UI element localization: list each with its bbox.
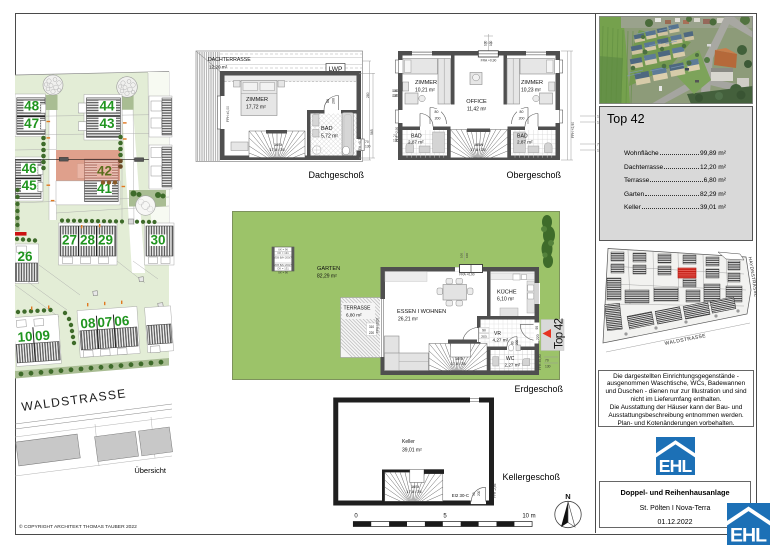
svg-text:100: 100 (460, 253, 464, 258)
svg-text:29: 29 (98, 233, 113, 248)
svg-text:10: 10 (17, 329, 33, 345)
svg-text:2,27 m²: 2,27 m² (505, 363, 521, 368)
svg-text:6,80 m²: 6,80 m² (346, 313, 362, 318)
svg-text:5: 5 (443, 514, 447, 520)
svg-text:565: 565 (370, 129, 374, 135)
svg-text:10,23 m²: 10,23 m² (521, 88, 541, 94)
svg-text:82,29 m²: 82,29 m² (317, 274, 337, 280)
svg-text:27: 27 (62, 233, 77, 248)
svg-text:280: 280 (366, 92, 370, 98)
svg-text:WC: WC (506, 356, 515, 362)
svg-text:FFH +2,90: FFH +2,90 (395, 127, 399, 142)
svg-text:FFH +2,90: FFH +2,90 (571, 122, 575, 138)
svg-text:45: 45 (22, 178, 38, 193)
svg-text:26,21 m²: 26,21 m² (398, 317, 418, 323)
svg-text:200: 200 (519, 117, 525, 121)
svg-text:11,42 m²: 11,42 m² (467, 107, 487, 113)
svg-text:10,21 m²: 10,21 m² (415, 88, 435, 94)
svg-text:80: 80 (326, 99, 330, 103)
svg-text:17,8 / 25: 17,8 / 25 (450, 361, 465, 366)
svg-text:80: 80 (520, 110, 524, 114)
svg-text:200: 200 (435, 117, 441, 121)
svg-text:4,27 m²: 4,27 m² (493, 338, 509, 343)
svg-text:100: 100 (484, 40, 488, 46)
svg-text:17,8 / 25: 17,8 / 25 (406, 489, 421, 494)
svg-text:Top 42: Top 42 (554, 318, 566, 349)
svg-text:UK = 96: UK = 96 (278, 271, 288, 275)
svg-text:Keller: Keller (402, 439, 415, 445)
svg-text:ESSEN I WOHNEN: ESSEN I WOHNEN (397, 309, 446, 315)
svg-text:OFFICE: OFFICE (466, 99, 487, 105)
svg-text:130: 130 (365, 145, 371, 149)
svg-text:FRA +0,90: FRA +0,90 (481, 59, 497, 63)
svg-text:WALDSTRASSE: WALDSTRASSE (21, 386, 128, 414)
svg-text:VR: VR (494, 331, 501, 337)
svg-text:220: 220 (369, 331, 375, 335)
svg-text:FFH -2,86: FFH -2,86 (493, 483, 497, 498)
svg-text:100: 100 (392, 89, 398, 93)
svg-text:310: 310 (369, 325, 375, 329)
svg-text:2,87 m²: 2,87 m² (408, 140, 424, 145)
svg-text:26: 26 (17, 249, 33, 264)
svg-text:GARTEN: GARTEN (317, 266, 340, 272)
svg-text:43: 43 (99, 116, 115, 131)
svg-text:2,87 m²: 2,87 m² (517, 140, 533, 145)
svg-text:10 m: 10 m (522, 514, 535, 520)
svg-text:FFH ±0,00: FFH ±0,00 (376, 318, 380, 333)
svg-text:28: 28 (80, 233, 96, 248)
svg-text:OK = 131: OK = 131 (277, 251, 289, 255)
svg-text:EHL: EHL (659, 456, 693, 475)
svg-text:90: 90 (472, 492, 476, 496)
svg-text:47: 47 (24, 116, 39, 131)
svg-text:06: 06 (114, 313, 131, 329)
svg-text:42: 42 (97, 163, 112, 178)
svg-text:09: 09 (34, 328, 50, 344)
svg-text:220: 220 (536, 334, 540, 340)
svg-text:FRA +0,90: FRA +0,90 (459, 273, 474, 277)
svg-text:TERRASSE: TERRASSE (344, 306, 372, 312)
svg-text:90: 90 (482, 329, 486, 333)
svg-text:200: 200 (481, 335, 487, 339)
svg-text:6,10 m²: 6,10 m² (497, 297, 514, 303)
svg-text:80: 80 (435, 110, 439, 114)
svg-text:70: 70 (365, 140, 369, 144)
svg-text:07: 07 (97, 314, 113, 330)
svg-text:130: 130 (392, 94, 398, 98)
svg-text:100: 100 (489, 40, 493, 46)
svg-text:200: 200 (515, 339, 519, 345)
svg-text:N: N (565, 492, 570, 501)
svg-text:17,8 / 25: 17,8 / 25 (269, 147, 284, 152)
svg-text:DACHTERRASSE: DACHTERRASSE (208, 57, 251, 63)
svg-text:130: 130 (545, 365, 551, 369)
svg-text:5,72 m²: 5,72 m² (321, 134, 338, 140)
svg-text:EHL: EHL (730, 525, 767, 545)
svg-text:WDB B/H 200/70: WDB B/H 200/70 (273, 263, 294, 267)
svg-text:30: 30 (150, 233, 165, 248)
svg-text:ZIMMER: ZIMMER (246, 97, 268, 103)
svg-text:WALDSTRASSE: WALDSTRASSE (664, 333, 707, 347)
svg-text:12,20 m²: 12,20 m² (209, 65, 228, 70)
svg-text:KÜCHE: KÜCHE (497, 289, 517, 296)
svg-text:0: 0 (354, 514, 358, 520)
svg-text:100: 100 (465, 253, 469, 258)
svg-text:48: 48 (24, 99, 40, 114)
svg-text:WDB B/H 200/70: WDB B/H 200/70 (273, 255, 294, 259)
svg-text:FFH ±0,00: FFH ±0,00 (226, 106, 230, 122)
svg-text:FFH +5,78: FFH +5,78 (358, 137, 362, 152)
svg-text:200: 200 (332, 98, 336, 104)
svg-text:200: 200 (477, 490, 481, 496)
svg-text:EI2 30-C: EI2 30-C (452, 493, 469, 498)
svg-text:OK = 131: OK = 131 (277, 266, 289, 270)
svg-text:90: 90 (535, 326, 539, 330)
svg-text:17,8 / 25: 17,8 / 25 (470, 147, 485, 152)
svg-text:39,01 m²: 39,01 m² (402, 448, 422, 454)
svg-text:46: 46 (22, 161, 38, 176)
svg-text:BAD: BAD (321, 126, 333, 132)
svg-text:ZIMMER: ZIMMER (521, 80, 543, 86)
svg-text:70: 70 (545, 359, 549, 363)
svg-text:ZIMMER: ZIMMER (415, 80, 437, 86)
svg-text:08: 08 (80, 315, 97, 331)
svg-text:FFH ±0,00: FFH ±0,00 (538, 354, 542, 370)
svg-text:UK = 96: UK = 96 (278, 248, 288, 252)
svg-text:44: 44 (99, 98, 115, 113)
svg-text:17,72 m²: 17,72 m² (246, 105, 266, 111)
